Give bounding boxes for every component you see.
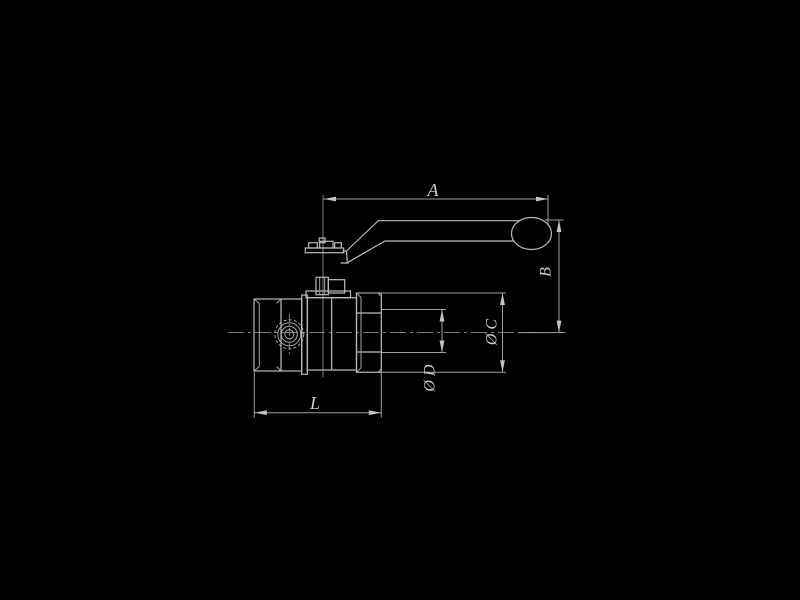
ball-valve-technical-drawing: A B Ø C Ø D L — [0, 0, 800, 600]
dimension-b: B — [518, 220, 564, 333]
handle-fixing-nut — [305, 238, 343, 253]
central-body — [307, 298, 356, 370]
gland-nut — [316, 277, 345, 294]
dim-label-a: A — [427, 180, 440, 200]
handle-grip-end — [512, 218, 552, 250]
valve-body — [254, 293, 381, 374]
dimension-a: A — [324, 180, 549, 224]
dimension-d: Ø D — [382, 310, 446, 393]
dim-label-c: Ø C — [484, 319, 501, 347]
dim-label-b: B — [538, 267, 555, 277]
dim-label-d: Ø D — [422, 364, 439, 393]
centerlines — [228, 195, 566, 378]
screenshot-canvas: A B Ø C Ø D L — [0, 0, 800, 600]
dimension-l: L — [254, 372, 381, 418]
dim-label-l: L — [309, 393, 320, 413]
stem-assembly — [305, 238, 350, 298]
body-flange — [302, 295, 308, 374]
lever-handle — [341, 218, 552, 264]
